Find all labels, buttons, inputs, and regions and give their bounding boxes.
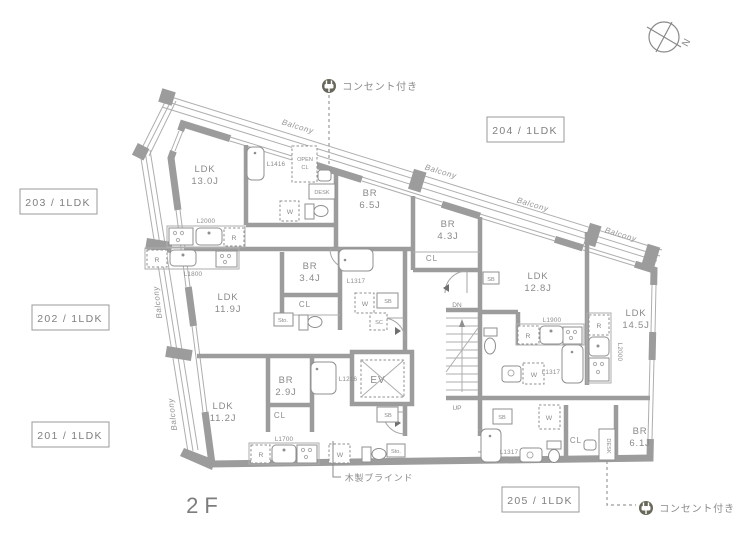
outlet-bottom-label: コンセント付き (659, 502, 735, 515)
balcony-label-204a: Balcony (424, 163, 458, 181)
compass-north-label: N (680, 37, 693, 49)
washer-label-204: W (531, 372, 538, 379)
compass-cross (647, 22, 681, 52)
floor-label: 2F (186, 493, 224, 518)
outlet-icon-top (322, 79, 336, 93)
refrigerator-label-202: R (155, 257, 160, 264)
outlet-icon-bottom (639, 501, 653, 515)
room-203-ldk-name: LDK (195, 164, 216, 175)
washer-label-201: W (337, 452, 344, 459)
kitchen-code-203: L2000 (197, 218, 216, 225)
washbasin-204 (502, 366, 521, 382)
stove-201 (297, 445, 317, 463)
kitchen-code-201: L1700 (275, 436, 294, 443)
toilet-bowl-204 (485, 338, 496, 354)
room-201-ldk-name: LDK (213, 401, 234, 412)
bath-code-204: L1317 (542, 369, 561, 376)
refrigerator-label-204: R (526, 333, 531, 340)
sink-202 (170, 250, 196, 266)
wood-blinds-label: 木製ブラインド (345, 472, 414, 483)
bath-code-202: L1317 (347, 278, 366, 285)
compass: N (647, 22, 693, 52)
toilet-tank-201 (362, 447, 371, 462)
annotation-outlet-top: コンセント付き (322, 79, 418, 164)
unit-tag-204: 204 / 1LDK (492, 125, 558, 137)
room-205-ldk-size: 14.5J (622, 320, 649, 331)
bathtub-204 (562, 345, 583, 383)
room-203-br-name: BR (363, 188, 378, 199)
closet-201: CL (274, 411, 286, 420)
room-204-br-name: BR (441, 219, 456, 230)
open-cl-label-2: CL (301, 165, 308, 171)
toilet-tank-203 (305, 204, 314, 219)
unit-tag-201: 201 / 1LDK (37, 430, 103, 442)
bath-code-201: L1216 (339, 376, 358, 383)
toilet-tank-205 (547, 441, 561, 449)
kitchen-code-204: L1900 (543, 317, 562, 324)
chair-203 (318, 170, 331, 181)
open-cl-label-1: OPEN (297, 157, 313, 163)
refrigerator-label-203: R (232, 235, 237, 242)
sc-label-202: SC (375, 320, 383, 326)
room-201-br-size: 2.9J (275, 387, 296, 398)
sink-201 (272, 445, 296, 463)
balcony-label-204b: Balcony (516, 196, 550, 214)
bathtub-201 (311, 362, 336, 394)
room-204-br-size: 4.3J (437, 231, 458, 242)
refrigerator-label-201: R (259, 452, 264, 459)
outlet-bottom-leader (607, 461, 636, 505)
unit-tag-205: 205 / 1LDK (507, 495, 573, 507)
stairs-up-label: UP (452, 405, 461, 412)
outlet-top-label: コンセント付き (342, 80, 418, 93)
stove-203 (169, 228, 193, 245)
toilet-bowl-201 (372, 449, 386, 460)
washbasin-205 (520, 448, 542, 462)
floor-plan-page: DN UP EV L1416 OPEN CL DESK W (0, 0, 743, 536)
room-205-br-name: BR (633, 426, 648, 437)
toilet-bowl-202 (308, 317, 322, 328)
desk-label-203: DESK (314, 190, 330, 196)
washer-label-203: W (287, 209, 294, 216)
annotation-outlet-bottom: コンセント付き (607, 461, 735, 515)
chair-205 (584, 440, 596, 450)
washer-label-202: W (362, 301, 369, 308)
room-204-ldk-size: 12.8J (524, 283, 551, 294)
room-201-br-name: BR (279, 375, 294, 386)
elevator-label: EV (370, 375, 385, 386)
toilet-tank-204 (484, 328, 497, 336)
shoebox-label-205: SB (498, 415, 506, 421)
kitchen-code-205: L2000 (616, 343, 623, 362)
room-205-br-size: 6.1J (629, 438, 650, 449)
floor-plan-drawing: DN UP EV L1416 OPEN CL DESK W (0, 0, 743, 536)
unit-tag-202: 202 / 1LDK (37, 313, 103, 325)
desk-label-205: DESK (605, 438, 611, 454)
shoebox-label-204: SB (487, 277, 495, 283)
closet-204: CL (426, 254, 438, 263)
closet-205: CL (570, 436, 582, 445)
room-202-ldk-name: LDK (218, 292, 239, 303)
stove-204 (563, 327, 582, 344)
washer-label-205: W (546, 415, 553, 422)
bath-code-205: L1317 (500, 449, 519, 456)
bathtub-205 (481, 429, 501, 462)
unit-tag-203: 203 / 1LDK (25, 197, 91, 209)
toilet-tank-202 (299, 315, 308, 330)
toilet-bowl-205 (549, 450, 560, 463)
storage-label-201: Sto. (391, 449, 401, 455)
room-204-ldk-name: LDK (528, 271, 549, 282)
balcony-label-205: Balcony (604, 226, 638, 244)
toilet-bowl-203 (314, 206, 328, 217)
stairs-down-label: DN (452, 302, 462, 309)
room-202-ldk-size: 11.9J (215, 304, 242, 315)
shoebox-label-201: SB (384, 413, 392, 419)
stove-205 (589, 358, 609, 381)
sink-203 (196, 228, 222, 245)
shoebox-label-202: SB (384, 299, 392, 305)
room-201-ldk-size: 11.2J (210, 413, 237, 424)
stove-202 (216, 251, 237, 267)
closet-202: CL (299, 300, 311, 309)
kitchen-code-202: L1800 (184, 271, 203, 278)
balcony-label-201: Balcony (166, 397, 179, 431)
bath-code-203: L1416 (267, 161, 286, 168)
sink-204 (540, 326, 563, 344)
open-closet-203 (292, 146, 317, 182)
refrigerator-label-205: R (597, 323, 602, 330)
room-203-ldk-size: 13.0J (191, 176, 218, 187)
room-205-ldk-name: LDK (626, 308, 647, 319)
room-202-br-name: BR (303, 261, 318, 272)
room-202-br-size: 3.4J (299, 273, 320, 284)
room-203-br-size: 6.5J (359, 200, 380, 211)
storage-label-202: Sto. (278, 318, 288, 324)
